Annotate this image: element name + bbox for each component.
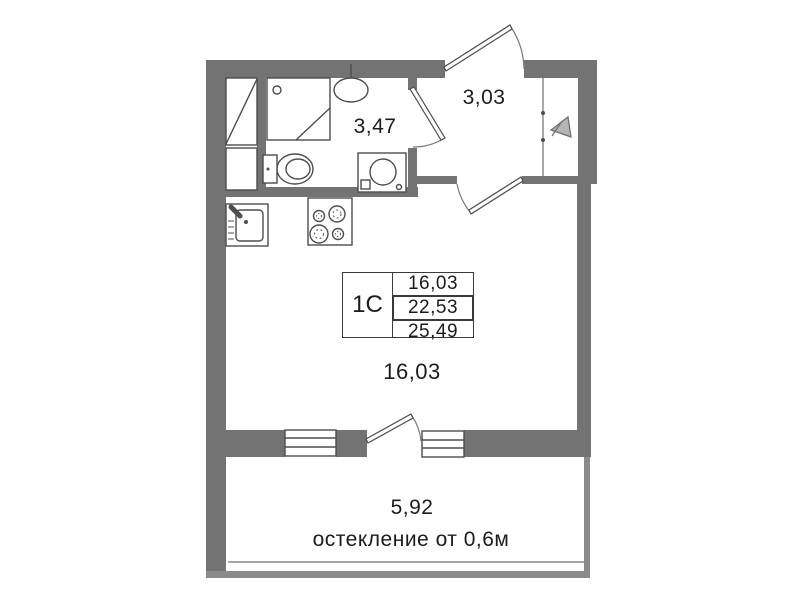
label-glazing-note: остекление от 0,6м xyxy=(313,528,510,552)
entrance-door-swing xyxy=(444,25,524,71)
unit-area-row: 22,53 xyxy=(392,295,474,321)
wardrobe-icon xyxy=(226,78,257,190)
washing-machine-icon xyxy=(358,153,406,192)
window-left xyxy=(285,430,336,456)
balcony-door-swing xyxy=(366,414,421,443)
label-balcony-area: 5,92 xyxy=(391,496,434,520)
bath-sink-icon xyxy=(334,64,368,102)
floor-plan: 1C 16,03 22,53 25,49 3,47 3,03 16,03 5,9… xyxy=(0,0,799,600)
unit-type-cell: 1C xyxy=(343,273,393,337)
label-bathroom-area: 3,47 xyxy=(354,115,397,139)
entrance-arrow-icon xyxy=(551,117,571,137)
unit-area-row: 16,03 xyxy=(393,273,473,296)
stove-icon xyxy=(308,198,352,245)
unit-areas-column: 16,03 22,53 25,49 xyxy=(393,273,473,337)
label-hall-area: 3,03 xyxy=(463,86,506,110)
label-room-area: 16,03 xyxy=(383,359,441,385)
window-right xyxy=(422,431,464,457)
kitchen-sink-icon xyxy=(226,204,268,246)
unit-spec-table: 1C 16,03 22,53 25,49 xyxy=(342,272,474,338)
toilet-icon xyxy=(263,154,313,184)
unit-area-row: 25,49 xyxy=(393,321,473,343)
shower-cabin-icon xyxy=(267,78,330,140)
entrance-niche xyxy=(541,78,545,176)
room-door-swing xyxy=(457,177,523,214)
bathroom-door-swing xyxy=(410,87,445,147)
